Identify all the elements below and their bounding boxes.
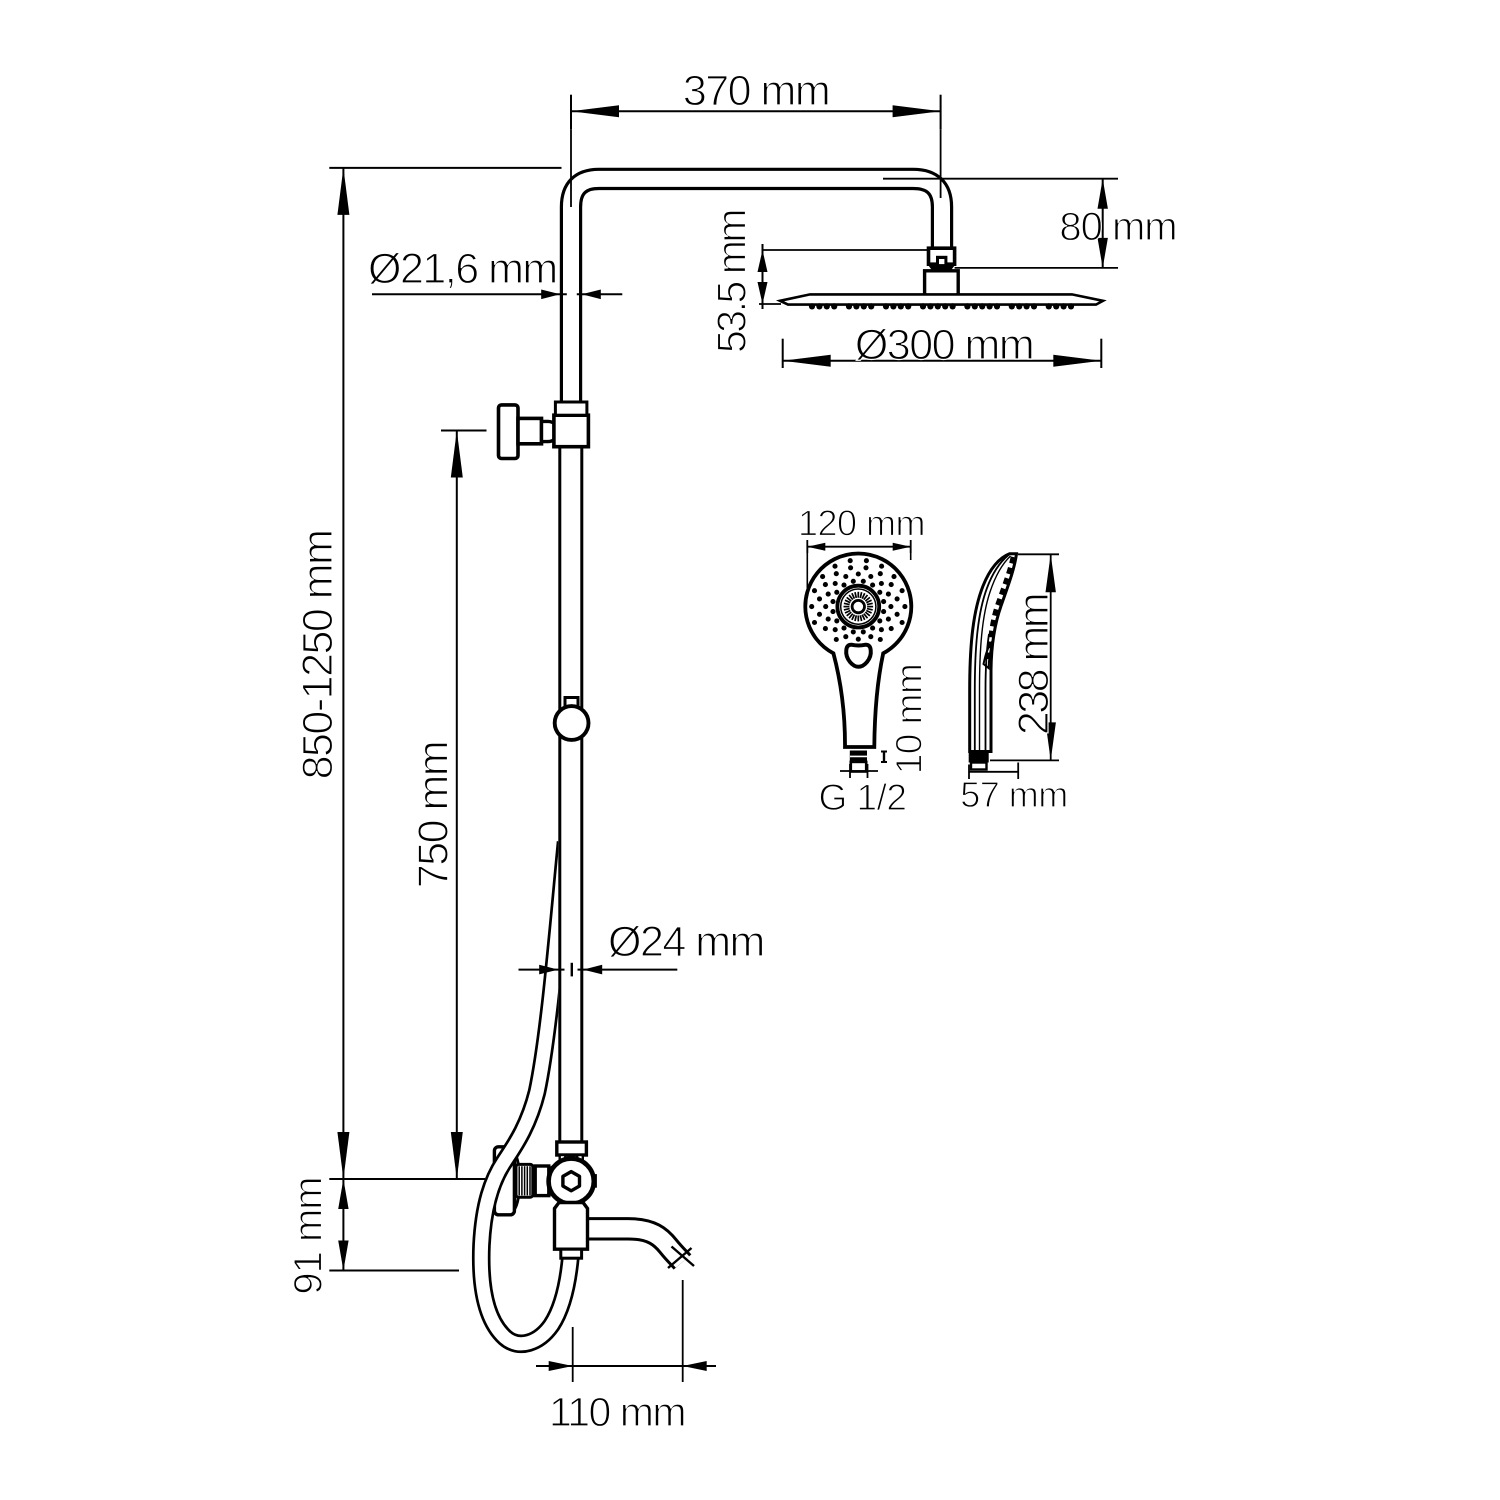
svg-text:238 mm: 238 mm [1010, 595, 1058, 735]
svg-text:Ø21,6 mm: Ø21,6 mm [368, 245, 557, 293]
svg-text:Ø300 mm: Ø300 mm [855, 321, 1033, 369]
svg-text:10 mm: 10 mm [889, 664, 930, 775]
svg-text:850-1250 mm: 850-1250 mm [294, 531, 342, 780]
svg-text:G 1/2: G 1/2 [819, 777, 907, 818]
svg-text:80 mm: 80 mm [1059, 205, 1176, 249]
svg-text:53.5 mm: 53.5 mm [709, 211, 755, 353]
svg-text:57 mm: 57 mm [960, 774, 1068, 815]
svg-text:Ø24 mm: Ø24 mm [608, 918, 764, 966]
svg-text:110 mm: 110 mm [549, 1389, 685, 1435]
svg-text:370 mm: 370 mm [683, 67, 829, 115]
svg-text:91 mm: 91 mm [287, 1177, 331, 1294]
svg-text:750 mm: 750 mm [410, 742, 458, 888]
svg-text:120 mm: 120 mm [798, 503, 925, 544]
